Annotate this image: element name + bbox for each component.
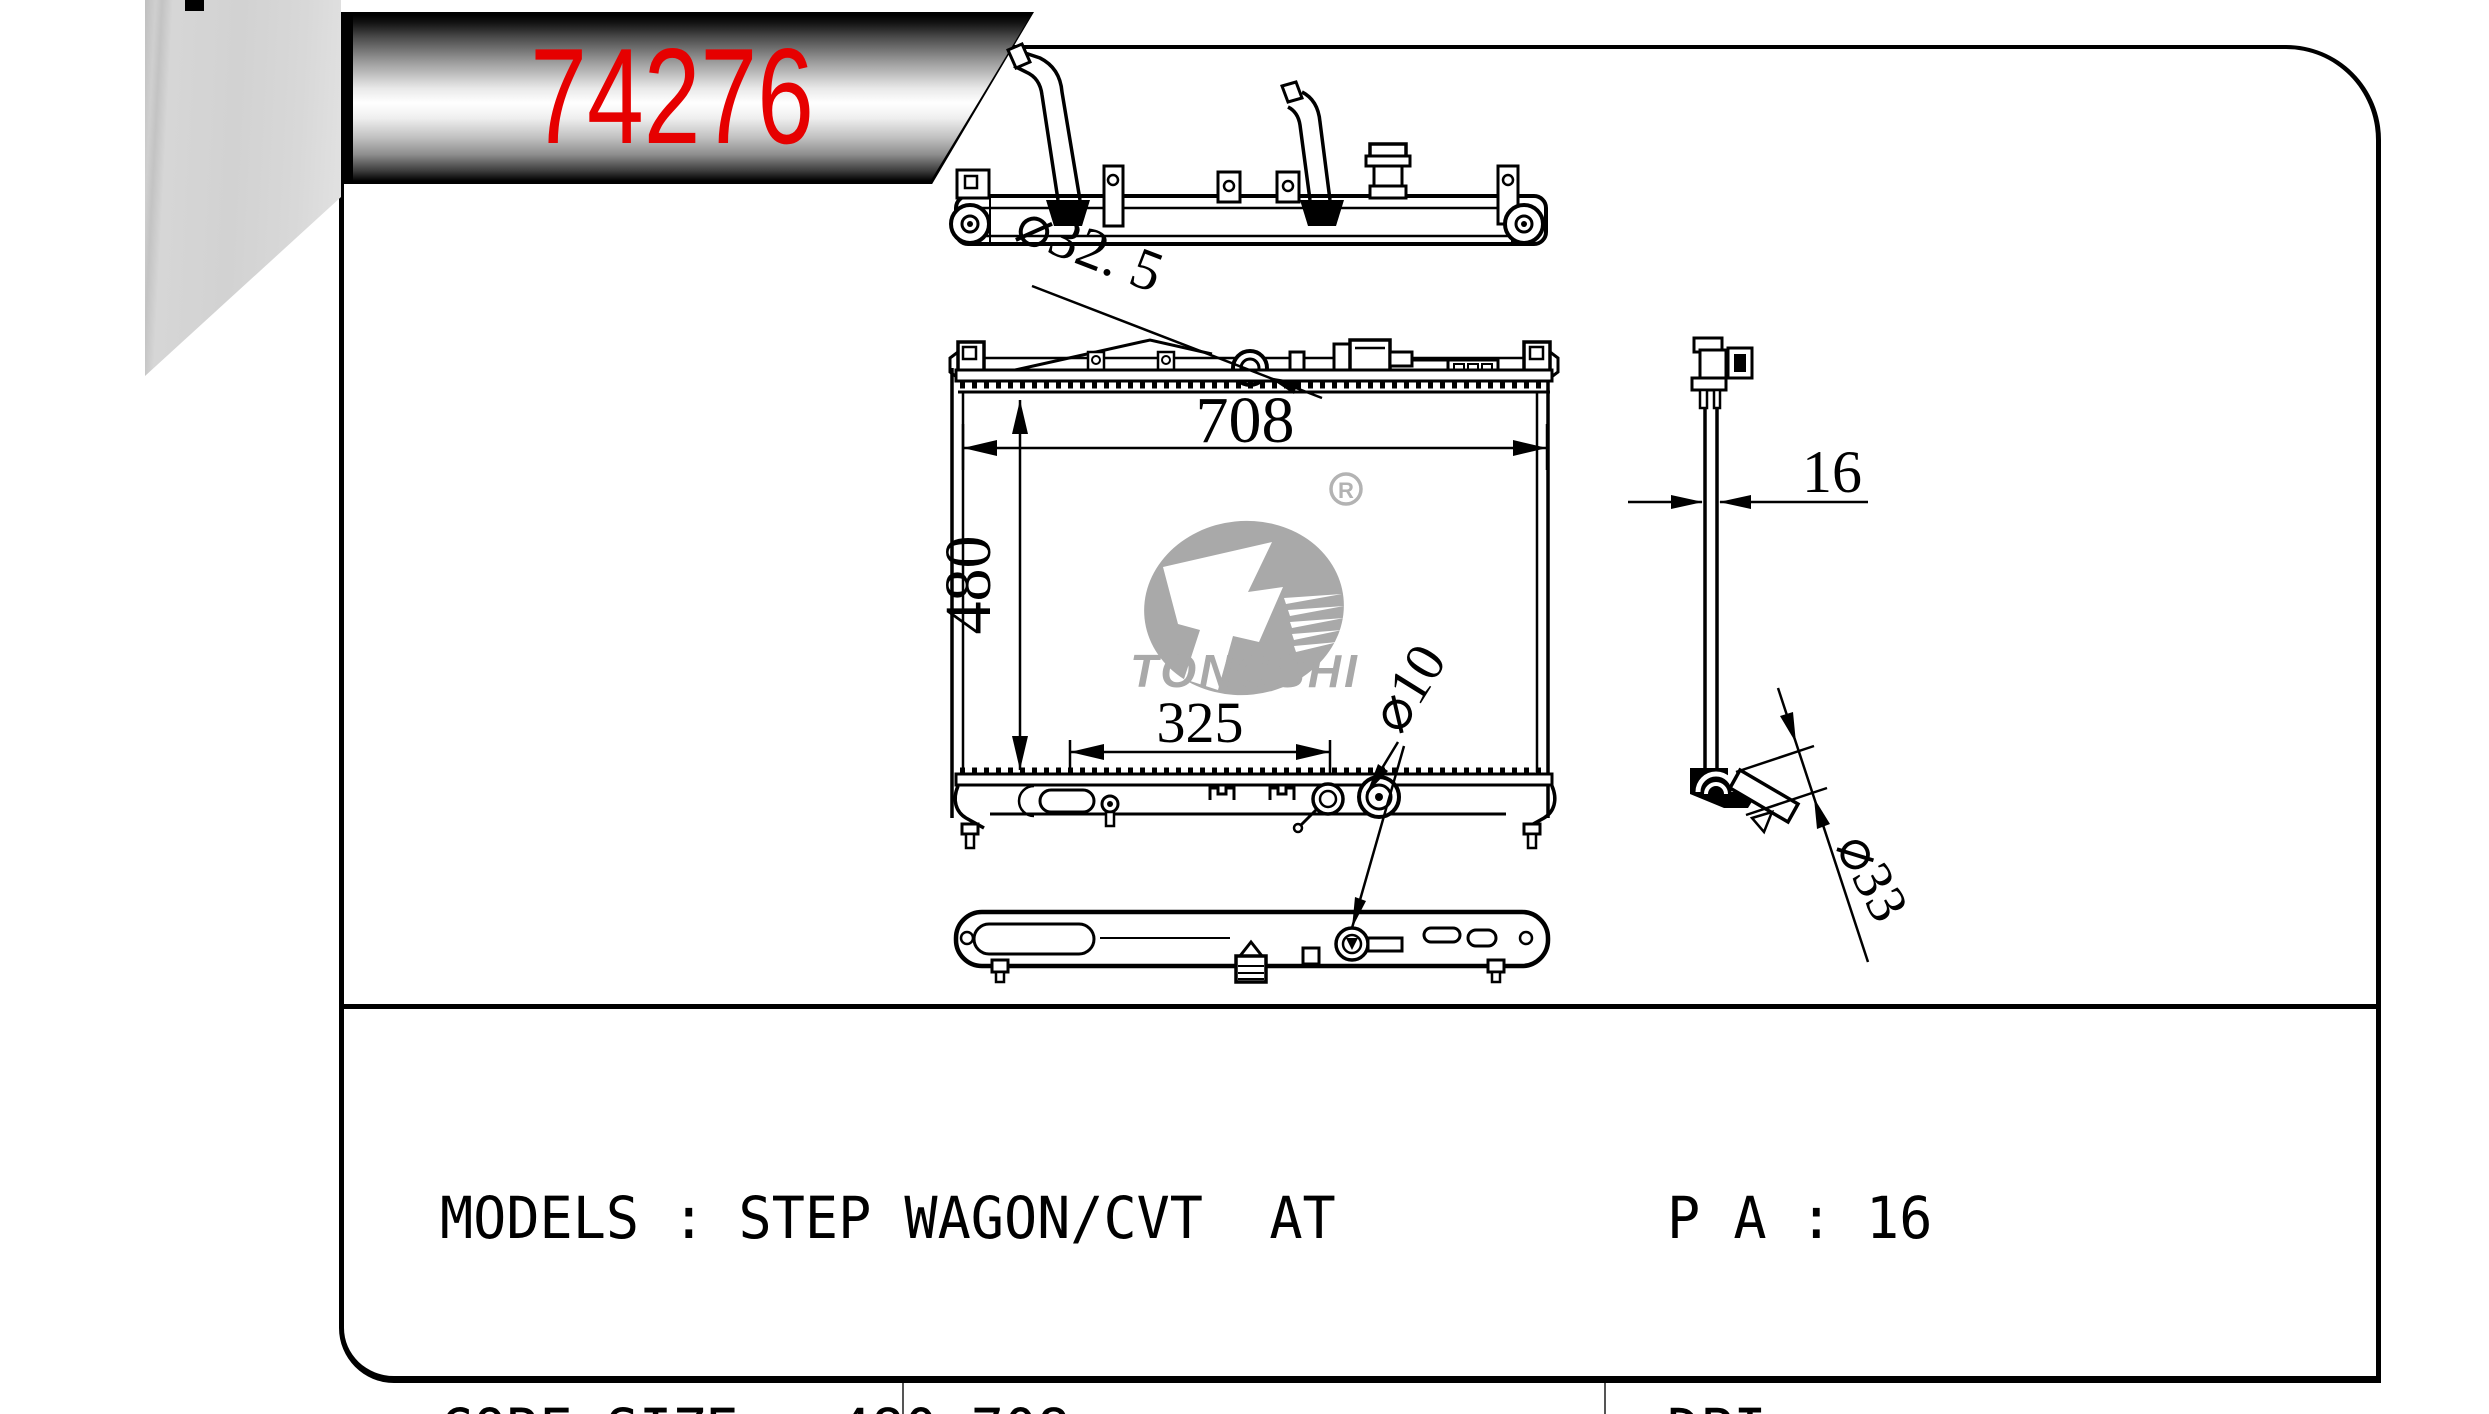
datasheet-page: 74276 — [0, 0, 2489, 1414]
dim-325-label: 325 — [1157, 690, 1244, 755]
dimension-708: 708 — [963, 384, 1547, 470]
spec-core-size: CORE SIZE : 480×708 — [440, 1395, 1336, 1414]
dim-outlet-label: ⌀33 — [1823, 823, 1920, 931]
registered-mark: R — [1338, 478, 1354, 503]
dim-drain-label: ⌀10 — [1359, 634, 1459, 743]
dimension-16: 16 — [1628, 439, 1868, 509]
spec-column-right: P A : 16 DPI : OEM : NISSENS: — [1667, 1042, 1932, 1414]
dimension-325: 325 — [1070, 690, 1330, 774]
spec-models: MODELS : STEP WAGON/CVT AT — [440, 1183, 1336, 1254]
dim-16-label: 16 — [1802, 439, 1862, 505]
dim-480-label: 480 — [932, 536, 1005, 635]
dim-708-label: 708 — [1196, 384, 1295, 457]
spec-dpi: DPI : — [1667, 1395, 1932, 1414]
spec-column-left: MODELS : STEP WAGON/CVT AT CORE SIZE : 4… — [440, 1042, 1336, 1414]
dimension-480: 480 — [932, 400, 1028, 770]
bottom-view — [956, 912, 1548, 982]
brand-logo: R TONGSHI — [1130, 474, 1361, 705]
spec-pa: P A : 16 — [1667, 1183, 1932, 1254]
brand-name: TONGSHI — [1130, 645, 1360, 697]
